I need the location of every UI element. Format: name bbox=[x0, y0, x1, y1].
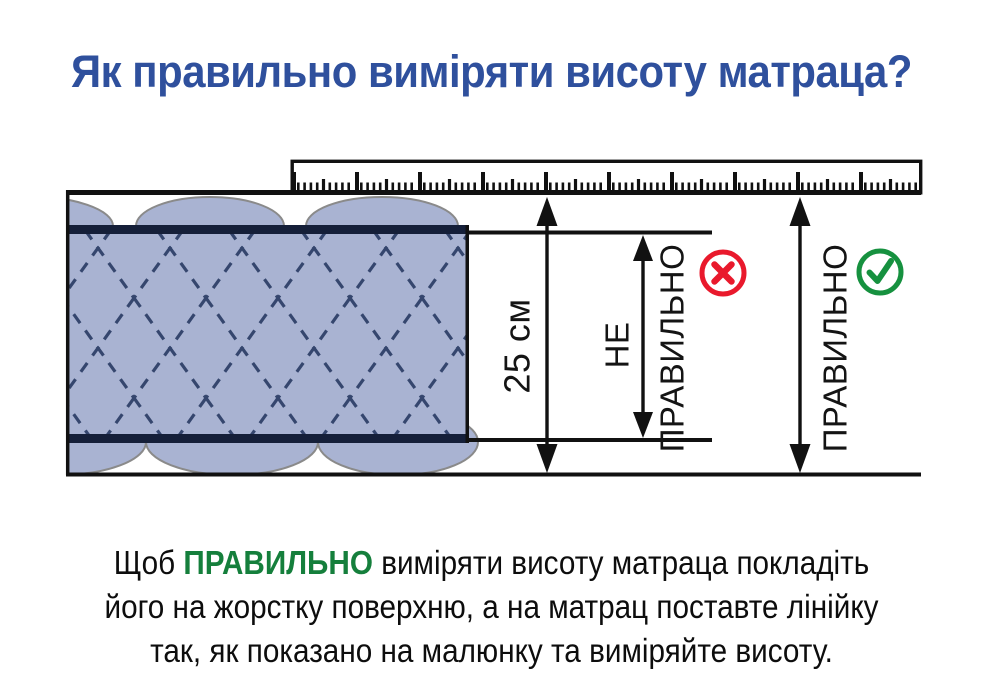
label-25cm: 25 см bbox=[497, 298, 538, 393]
mattress-bottom-band bbox=[67, 434, 467, 443]
arrow-25cm bbox=[537, 197, 558, 473]
label-ne: НЕ bbox=[599, 322, 636, 369]
mattress-top-band bbox=[67, 225, 467, 234]
explanation-line1-pre: Щоб bbox=[114, 544, 184, 581]
explanation-line-1: Щоб ПРАВИЛЬНО виміряти висоту матраца по… bbox=[49, 541, 934, 585]
arrow-correct-measure bbox=[790, 197, 811, 473]
arrow-wrong-measure bbox=[633, 235, 653, 438]
label-nepravylno: ПРАВИЛЬНО bbox=[654, 244, 691, 453]
mattress-right-edge bbox=[466, 225, 470, 443]
mattress-quilt-stitching bbox=[67, 225, 467, 443]
x-in-circle-icon bbox=[702, 252, 744, 294]
highlight-correct-word: ПРАВИЛЬНО bbox=[183, 544, 373, 581]
explanation-line1-post: виміряти висоту матраца покладіть bbox=[373, 544, 869, 581]
explanation-text: Щоб ПРАВИЛЬНО виміряти висоту матраца по… bbox=[49, 541, 934, 673]
infographic-page: Як правильно виміряти висоту матраца? bbox=[0, 0, 983, 700]
explanation-line-3: так, як показано на малюнку та виміряйте… bbox=[49, 629, 934, 673]
ruler bbox=[290, 161, 921, 193]
ruler-ticks bbox=[292, 172, 921, 193]
mattress-illustration bbox=[67, 225, 469, 443]
label-pravylno: ПРАВИЛЬНО bbox=[817, 244, 854, 453]
explanation-line-2: його на жорстку поверхню, а на матрац по… bbox=[49, 585, 934, 629]
check-in-circle-icon bbox=[859, 251, 901, 293]
